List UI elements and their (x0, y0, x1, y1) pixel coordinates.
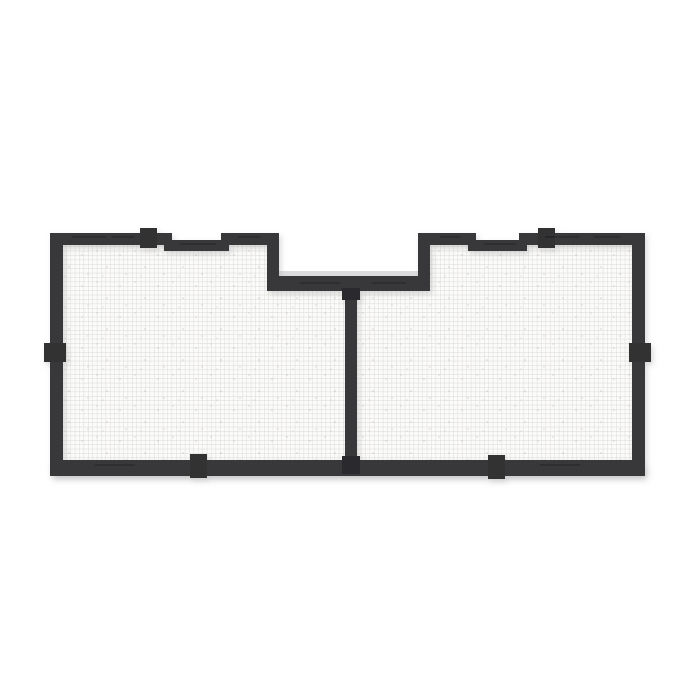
bottom-right-tab (488, 455, 505, 479)
right-side-tab (629, 343, 651, 362)
left-side-tab (44, 343, 66, 362)
gloss-streak (112, 236, 134, 238)
gloss-streak (72, 236, 106, 238)
frame-top-rail-left-recessed (164, 240, 228, 251)
center-bar-foot (342, 456, 360, 474)
gloss-streak (484, 243, 516, 245)
mesh-screen-product-image (0, 0, 700, 700)
gloss-streak (180, 243, 216, 245)
center-bar-top-connector (342, 288, 360, 300)
gloss-streak (540, 464, 580, 466)
frame-center-bar (345, 277, 357, 476)
gloss-streak (372, 282, 406, 284)
top-left-tab (140, 228, 157, 248)
gloss-streak (545, 236, 579, 238)
gloss-streak (300, 282, 340, 284)
gloss-streak (594, 236, 620, 238)
frame-top-rail-right-recessed (471, 240, 526, 251)
gloss-streak (95, 464, 135, 466)
gloss-streak (238, 236, 260, 238)
frame-top-rail-right-inner (428, 233, 474, 245)
bottom-left-tab (190, 454, 207, 478)
product-photo-canvas (0, 0, 700, 700)
gloss-streak (440, 236, 460, 238)
